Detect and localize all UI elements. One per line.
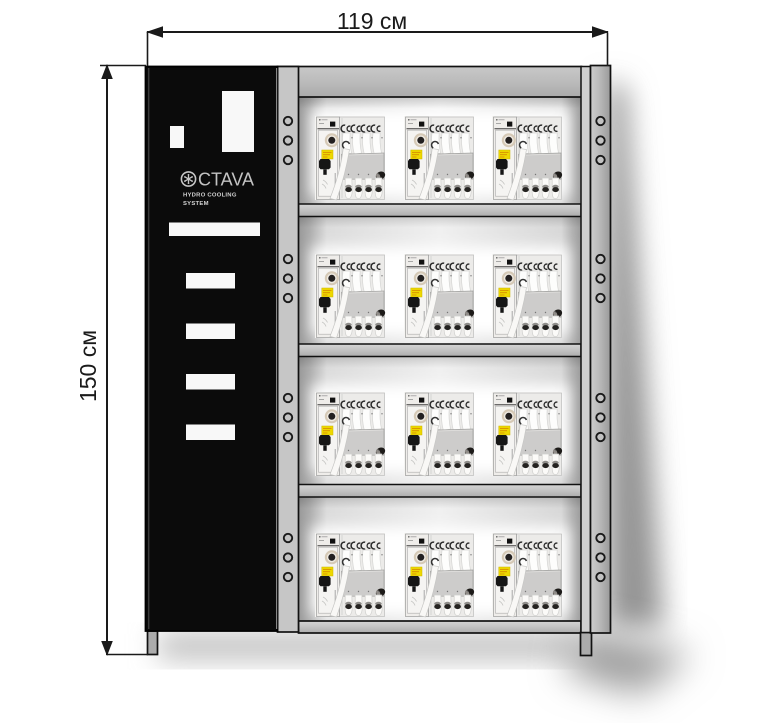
svg-text:119 см: 119 см [337,8,407,34]
svg-text:CTAVA: CTAVA [198,170,254,190]
svg-text:150 см: 150 см [75,330,101,402]
svg-text:SYSTEM: SYSTEM [183,201,209,207]
svg-text:HYDRO COOLING: HYDRO COOLING [183,193,237,199]
